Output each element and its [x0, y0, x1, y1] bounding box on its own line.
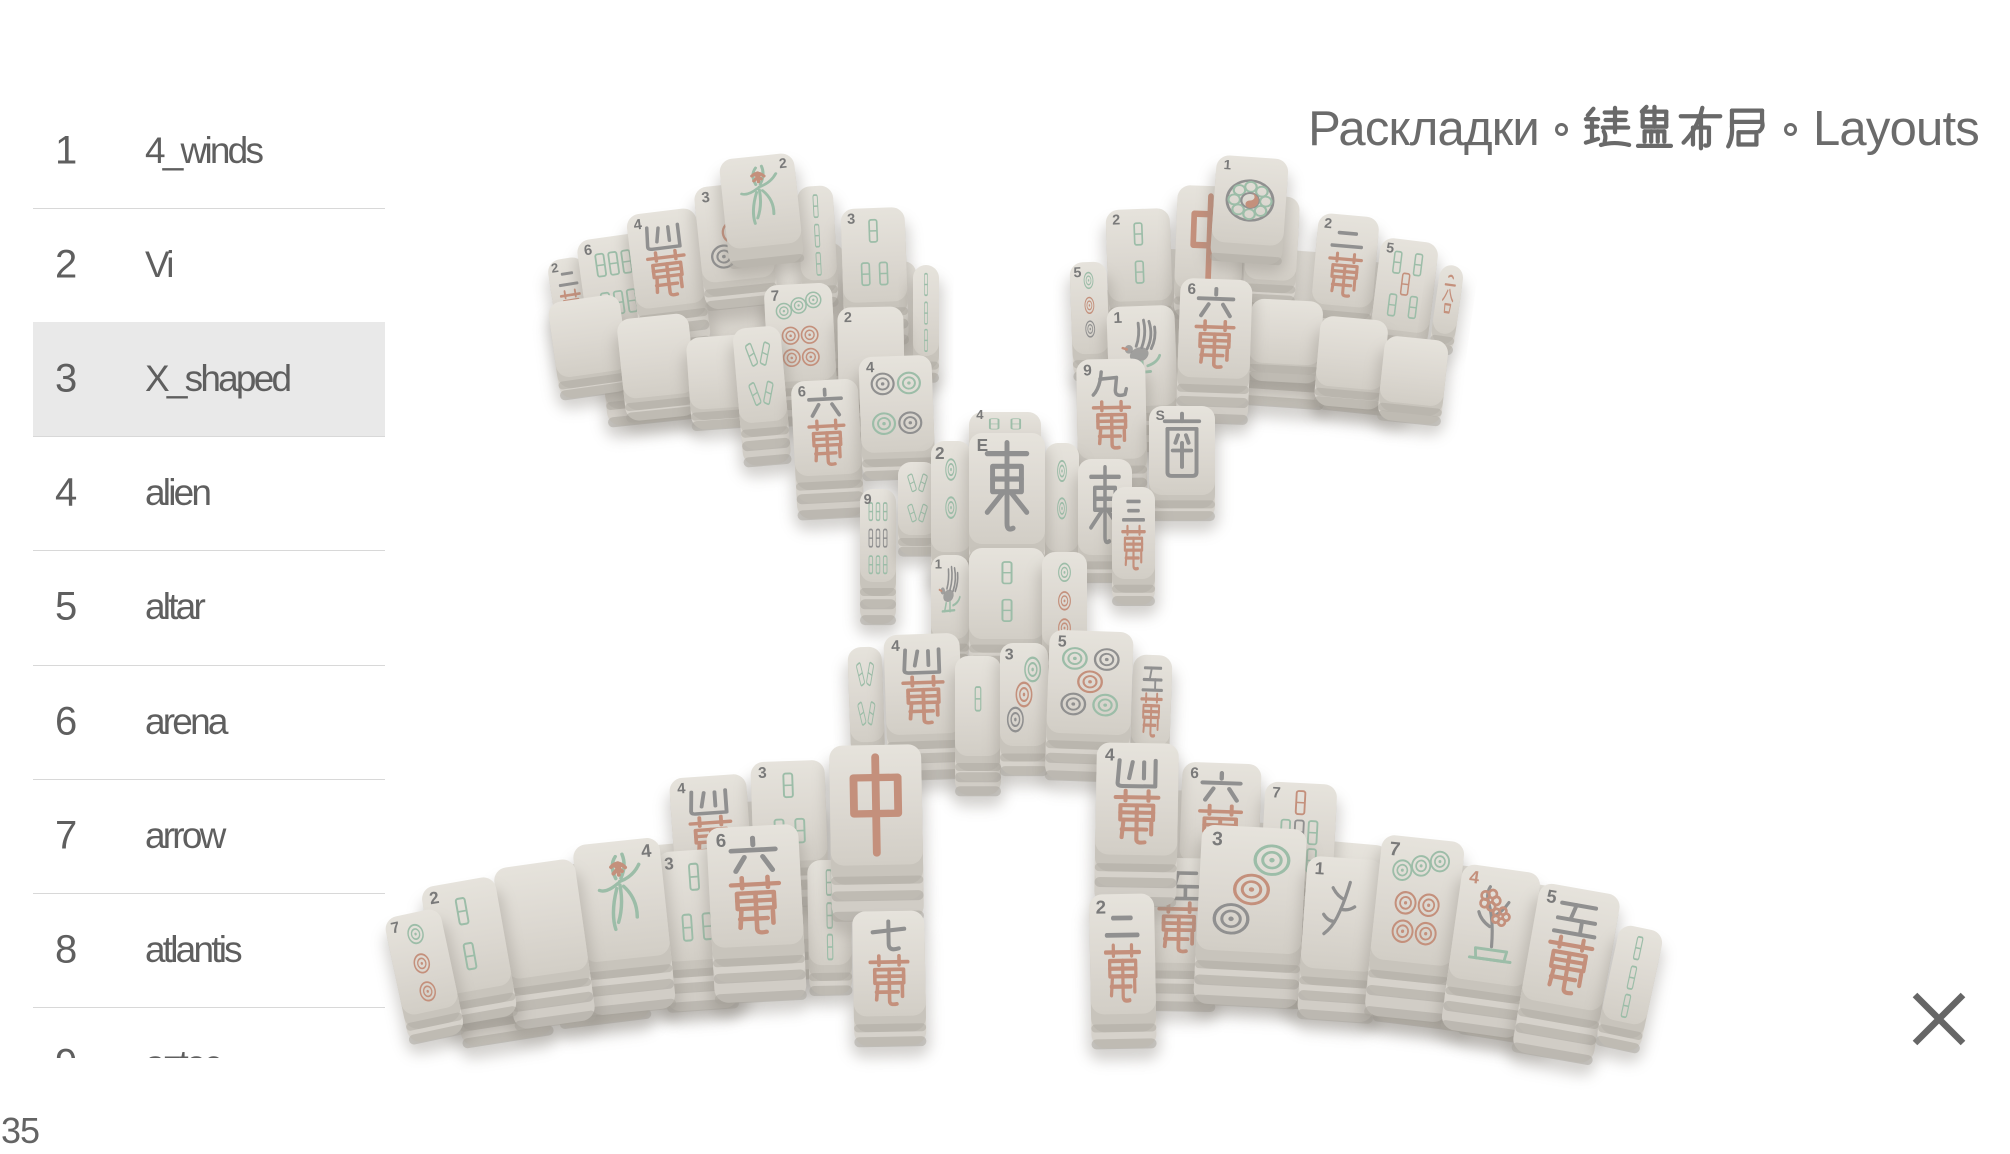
svg-text:2: 2 — [1112, 212, 1121, 228]
svg-text:7: 7 — [1272, 784, 1281, 801]
svg-text:3: 3 — [758, 765, 768, 782]
svg-text:6: 6 — [715, 830, 726, 852]
svg-text:4: 4 — [1105, 744, 1115, 764]
svg-text:2: 2 — [1095, 896, 1106, 917]
svg-text:E: E — [977, 435, 988, 455]
svg-text:9: 9 — [1083, 362, 1092, 379]
svg-text:1: 1 — [935, 556, 942, 571]
svg-text:5: 5 — [1073, 265, 1082, 281]
svg-text:2: 2 — [935, 443, 945, 463]
svg-text:6: 6 — [1190, 765, 1200, 782]
svg-text:2: 2 — [844, 310, 852, 326]
svg-text:4: 4 — [891, 638, 901, 655]
svg-text:7: 7 — [1388, 838, 1401, 861]
svg-text:6: 6 — [797, 384, 806, 400]
svg-text:7: 7 — [770, 288, 779, 305]
svg-text:5: 5 — [1058, 633, 1068, 650]
svg-text:6: 6 — [1187, 281, 1196, 298]
svg-text:9: 9 — [864, 492, 872, 508]
svg-text:1: 1 — [1314, 858, 1325, 879]
svg-text:3: 3 — [847, 212, 856, 228]
svg-text:4: 4 — [976, 407, 984, 422]
svg-text:3: 3 — [701, 190, 711, 207]
svg-text:3: 3 — [1212, 828, 1224, 851]
svg-text:4: 4 — [866, 360, 876, 376]
svg-text:S: S — [1156, 408, 1165, 423]
svg-text:3: 3 — [1005, 647, 1014, 664]
svg-text:2: 2 — [1324, 215, 1333, 232]
svg-text:1: 1 — [1113, 310, 1123, 327]
